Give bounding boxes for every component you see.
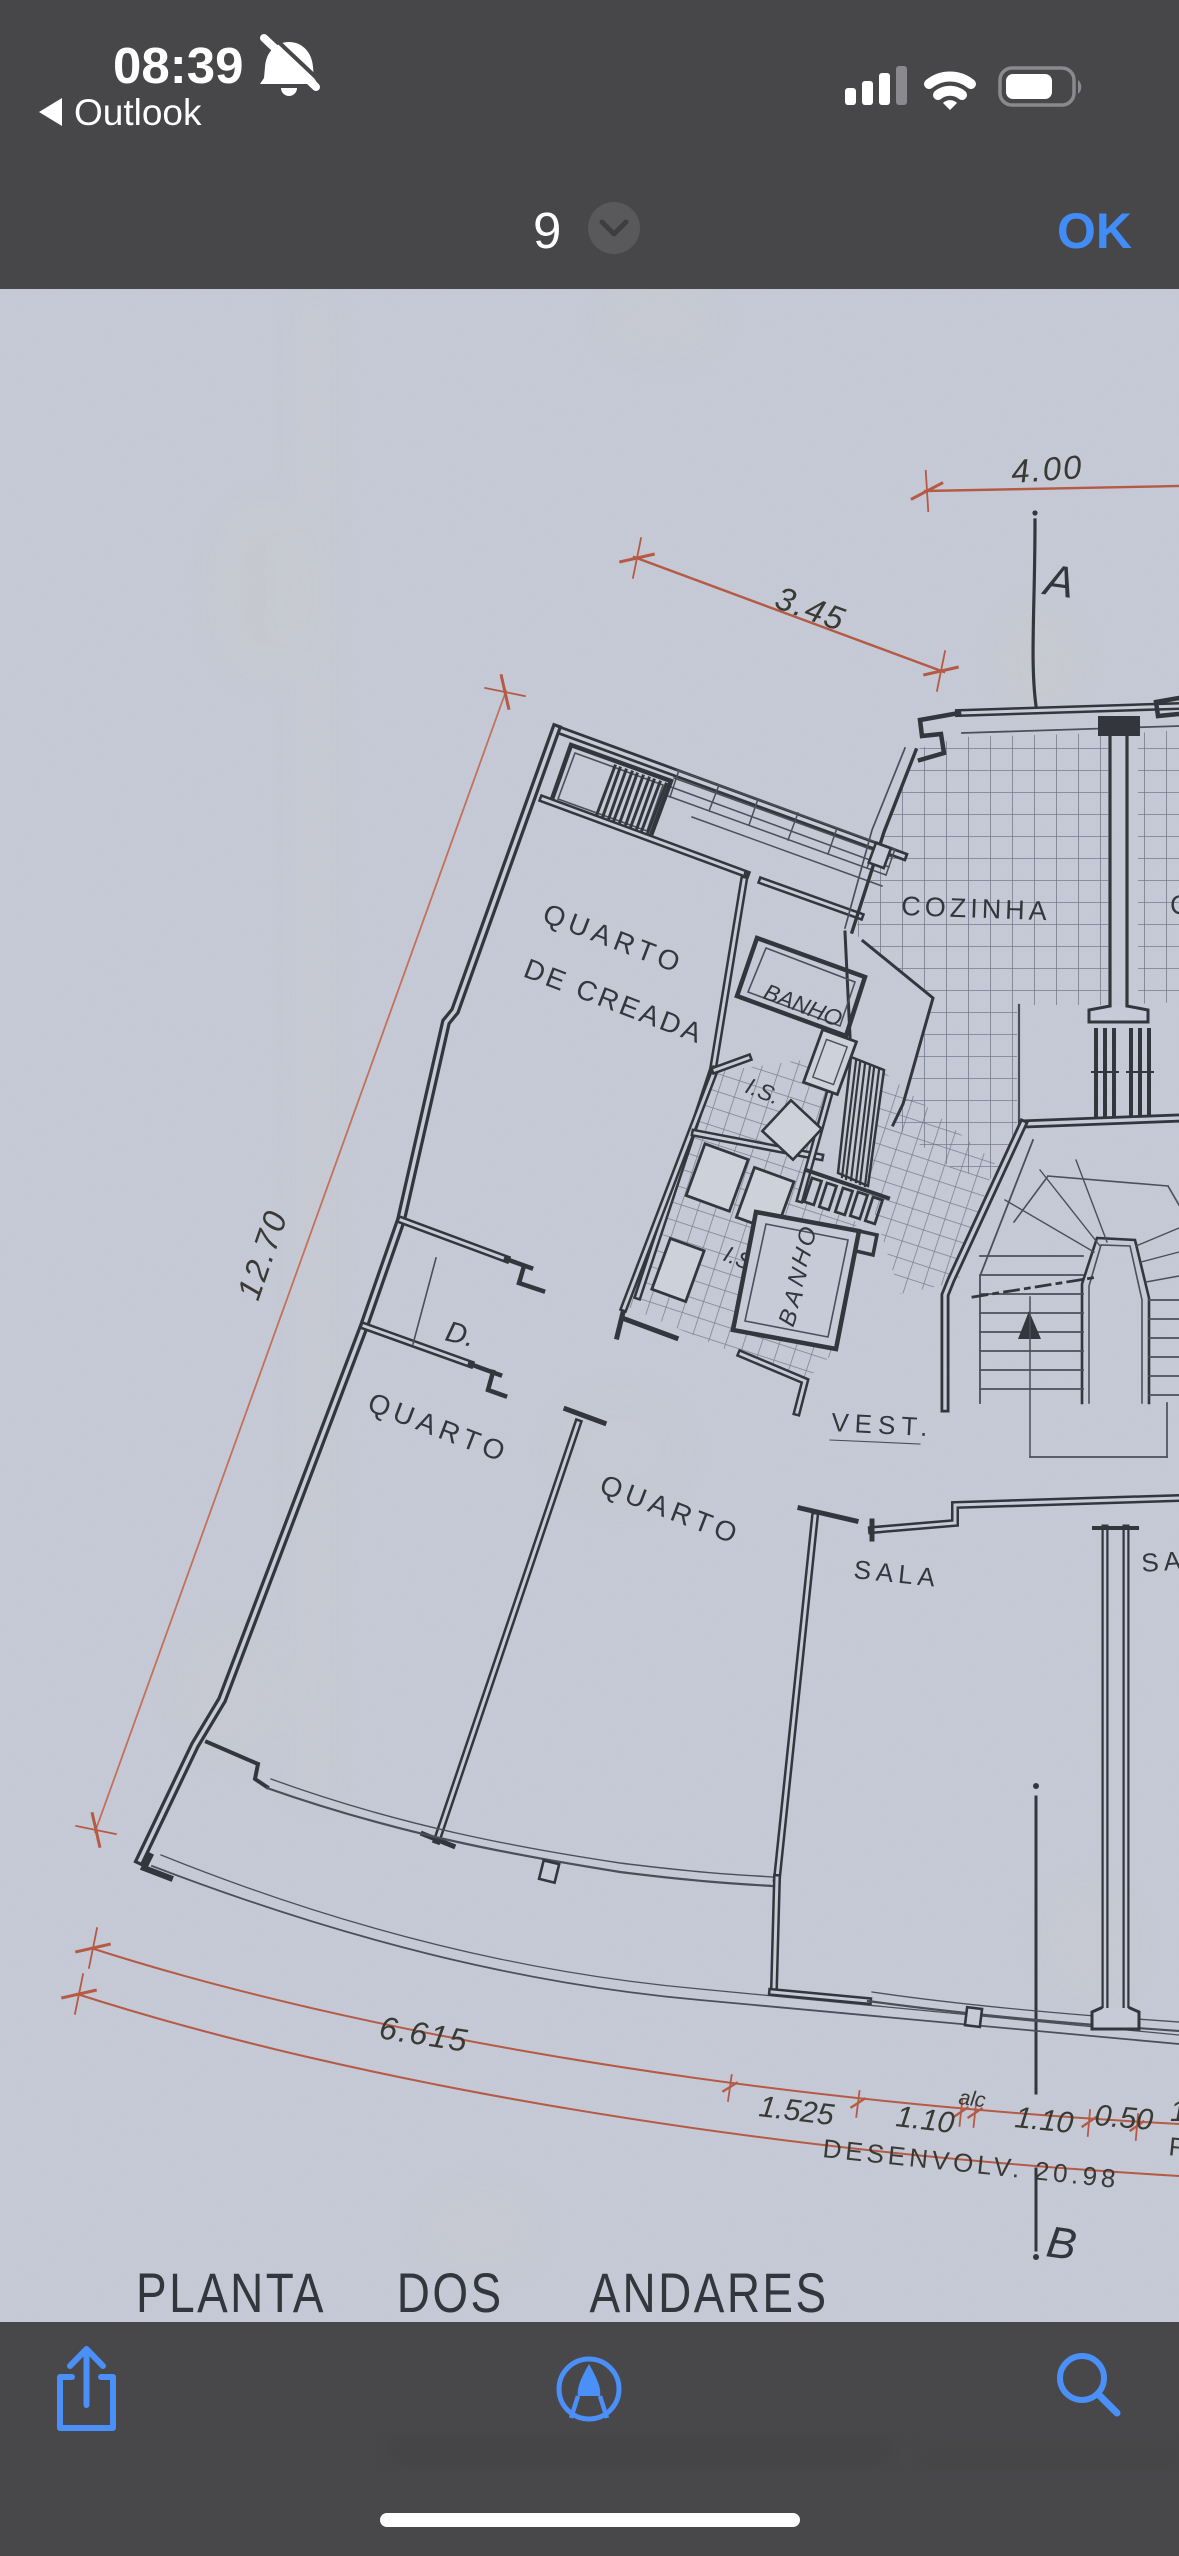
svg-text:alc: alc [957, 2086, 987, 2112]
svg-text:1.10: 1.10 [1013, 2101, 1075, 2140]
svg-text:VEST.: VEST. [831, 1407, 935, 1442]
svg-text:PLANTA: PLANTA [136, 2262, 326, 2324]
svg-text:C: C [1170, 890, 1179, 920]
svg-text:SA: SA [1140, 1545, 1179, 1578]
svg-text:R: R [1167, 2131, 1179, 2163]
svg-text:4.00: 4.00 [1010, 448, 1085, 490]
svg-text:OK: OK [1057, 203, 1132, 259]
svg-text:DOS: DOS [397, 2262, 504, 2324]
svg-text:08:39: 08:39 [113, 37, 243, 94]
svg-text:9: 9 [533, 202, 561, 259]
svg-text:0.50: 0.50 [1093, 2099, 1154, 2137]
svg-text:COZINHA: COZINHA [901, 891, 1051, 926]
svg-text:Outlook: Outlook [74, 92, 202, 133]
svg-text:ANDARES: ANDARES [589, 2262, 828, 2324]
svg-text:1: 1 [1170, 2095, 1179, 2128]
